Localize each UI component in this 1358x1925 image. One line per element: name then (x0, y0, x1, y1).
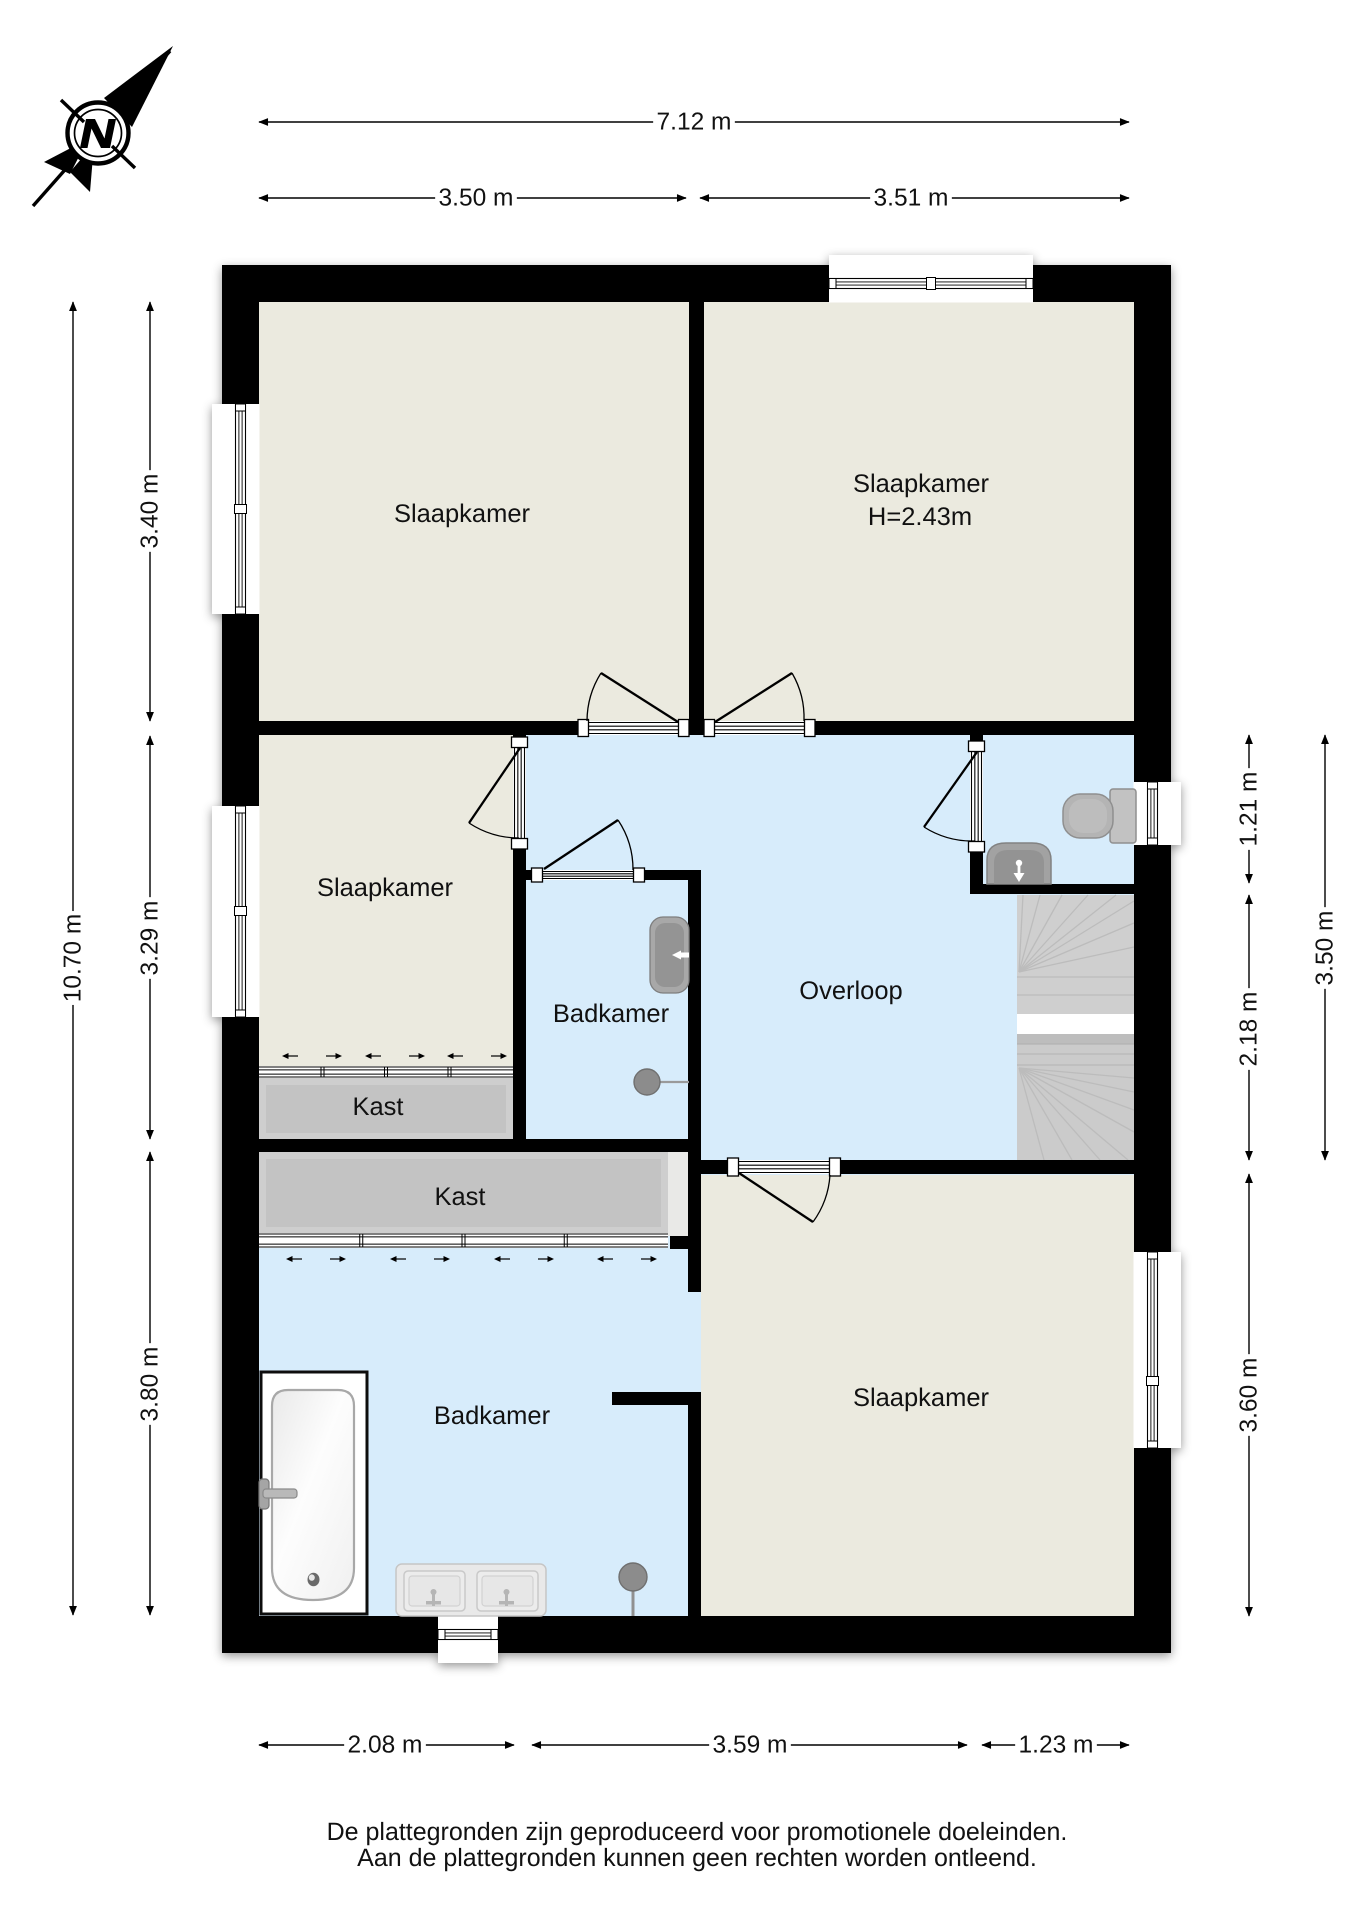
svg-text:De plattegronden zijn geproduc: De plattegronden zijn geproduceerd voor … (327, 1818, 1068, 1846)
svg-text:Aan de plattegronden kunnen ge: Aan de plattegronden kunnen geen rechten… (357, 1844, 1037, 1872)
svg-text:Kast: Kast (352, 1093, 403, 1121)
svg-text:3.59 m: 3.59 m (713, 1732, 788, 1759)
svg-text:Slaapkamer: Slaapkamer (853, 470, 990, 498)
svg-text:3.40 m: 3.40 m (137, 474, 164, 549)
svg-text:1.21 m: 1.21 m (1236, 772, 1263, 847)
svg-text:3.50 m: 3.50 m (1312, 911, 1339, 986)
svg-text:Badkamer: Badkamer (553, 1000, 670, 1028)
svg-text:Slaapkamer: Slaapkamer (317, 874, 454, 902)
svg-text:3.80 m: 3.80 m (137, 1347, 164, 1422)
svg-text:Slaapkamer: Slaapkamer (394, 500, 531, 528)
svg-text:3.60 m: 3.60 m (1236, 1358, 1263, 1433)
svg-text:2.08 m: 2.08 m (348, 1732, 423, 1759)
svg-text:Overloop: Overloop (799, 977, 902, 1005)
svg-text:3.50 m: 3.50 m (439, 185, 514, 212)
svg-text:1.23 m: 1.23 m (1019, 1732, 1094, 1759)
svg-text:Slaapkamer: Slaapkamer (853, 1384, 990, 1412)
svg-text:Badkamer: Badkamer (434, 1402, 551, 1430)
svg-text:3.51 m: 3.51 m (874, 185, 949, 212)
svg-text:2.18 m: 2.18 m (1236, 992, 1263, 1067)
svg-text:Kast: Kast (434, 1183, 485, 1211)
svg-text:3.29 m: 3.29 m (137, 901, 164, 976)
svg-text:7.12 m: 7.12 m (657, 109, 732, 136)
svg-text:H=2.43m: H=2.43m (868, 503, 972, 531)
svg-text:10.70 m: 10.70 m (60, 914, 87, 1003)
